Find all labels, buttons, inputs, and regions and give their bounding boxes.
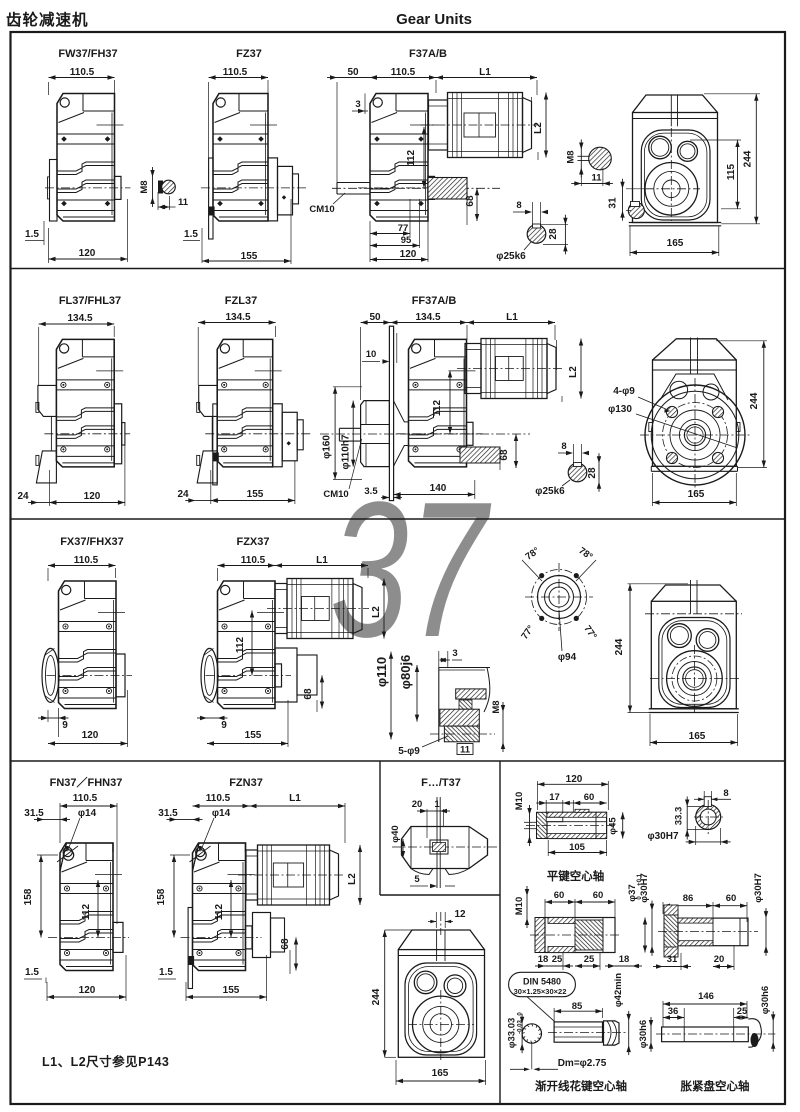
- svg-text:60: 60: [554, 890, 565, 901]
- svg-text:4-φ9: 4-φ9: [613, 386, 635, 397]
- svg-text:L1: L1: [506, 312, 518, 323]
- svg-text:11: 11: [178, 197, 189, 208]
- svg-text:胀紧盘空心轴: 胀紧盘空心轴: [681, 1079, 750, 1093]
- svg-text:L1: L1: [316, 555, 328, 566]
- svg-text:φ80j6: φ80j6: [398, 655, 413, 690]
- svg-text:φ25k6: φ25k6: [535, 486, 565, 497]
- svg-text:20: 20: [412, 799, 423, 810]
- svg-text:M8: M8: [139, 180, 150, 193]
- svg-text:11: 11: [460, 745, 471, 756]
- svg-text:110.5: 110.5: [223, 67, 248, 78]
- svg-text:φ42min: φ42min: [613, 973, 624, 1007]
- svg-text:60: 60: [584, 792, 595, 803]
- svg-text:25: 25: [737, 1006, 748, 1017]
- svg-text:12: 12: [454, 909, 466, 920]
- svg-text:120: 120: [79, 985, 96, 996]
- svg-text:110.5: 110.5: [70, 67, 95, 78]
- svg-text:CM10: CM10: [323, 489, 348, 500]
- svg-text:φ130: φ130: [608, 404, 632, 415]
- svg-text:165: 165: [688, 489, 705, 500]
- svg-text:36: 36: [668, 1006, 679, 1017]
- svg-text:φ30H7: φ30H7: [639, 873, 650, 903]
- svg-text:Gear Units: Gear Units: [396, 11, 472, 28]
- svg-text:158: 158: [23, 888, 34, 905]
- svg-text:φ40: φ40: [390, 825, 401, 842]
- svg-text:165: 165: [432, 1068, 449, 1079]
- svg-text:120: 120: [84, 491, 101, 502]
- svg-text:244: 244: [749, 392, 760, 409]
- svg-text:110.5: 110.5: [241, 555, 266, 566]
- svg-text:155: 155: [223, 985, 240, 996]
- svg-text:60: 60: [593, 890, 604, 901]
- svg-text:φ30H7: φ30H7: [647, 831, 678, 842]
- svg-text:FX37/FHX37: FX37/FHX37: [60, 536, 124, 548]
- svg-text:112: 112: [235, 636, 246, 653]
- svg-text:24: 24: [17, 491, 29, 502]
- svg-text:115: 115: [726, 163, 737, 180]
- svg-text:φ14: φ14: [212, 808, 231, 819]
- svg-text:L1: L1: [479, 67, 491, 78]
- svg-text:1.5: 1.5: [184, 229, 198, 240]
- svg-text:CM10: CM10: [309, 204, 334, 215]
- svg-text:3.5: 3.5: [364, 486, 378, 497]
- svg-text:L2: L2: [347, 873, 358, 885]
- svg-text:φ94: φ94: [558, 652, 577, 663]
- svg-text:18: 18: [538, 954, 549, 965]
- svg-text:1.5: 1.5: [25, 967, 39, 978]
- svg-text:140: 140: [430, 483, 447, 494]
- svg-text:244: 244: [743, 150, 754, 167]
- svg-text:85: 85: [572, 1001, 583, 1012]
- svg-text:110.5: 110.5: [74, 555, 99, 566]
- svg-text:165: 165: [689, 731, 706, 742]
- svg-text:φ30h6: φ30h6: [760, 986, 771, 1014]
- svg-text:FZX37: FZX37: [236, 536, 269, 548]
- svg-text:120: 120: [82, 730, 99, 741]
- svg-text:5: 5: [414, 874, 420, 885]
- svg-text:φ33.03: φ33.03: [507, 1018, 518, 1049]
- svg-text:146: 146: [698, 991, 714, 1002]
- svg-text:134.5: 134.5: [415, 312, 440, 323]
- svg-text:FZ37: FZ37: [236, 48, 262, 60]
- svg-text:Dm=φ2.75: Dm=φ2.75: [558, 1058, 607, 1069]
- svg-text:DIN 5480: DIN 5480: [523, 977, 561, 987]
- svg-text:134.5: 134.5: [67, 313, 92, 324]
- svg-text:68: 68: [499, 449, 510, 461]
- svg-text:18: 18: [619, 954, 630, 965]
- svg-text:50: 50: [369, 312, 381, 323]
- svg-text:17: 17: [549, 792, 560, 803]
- svg-text:110.5: 110.5: [391, 67, 416, 78]
- svg-text:20: 20: [714, 954, 725, 965]
- svg-text:L1: L1: [289, 793, 301, 804]
- svg-text:120: 120: [79, 248, 96, 259]
- svg-text:8: 8: [516, 200, 521, 211]
- svg-text:68: 68: [280, 938, 291, 950]
- svg-text:9: 9: [221, 720, 227, 731]
- svg-text:1.5: 1.5: [25, 229, 39, 240]
- svg-text:112: 112: [81, 903, 92, 920]
- svg-text:φ110h7: φ110h7: [341, 434, 352, 469]
- svg-text:31: 31: [608, 197, 619, 209]
- svg-text:M10: M10: [514, 792, 525, 810]
- svg-text:L2: L2: [568, 366, 579, 378]
- svg-text:平键空心轴: 平键空心轴: [547, 869, 605, 883]
- svg-text:112: 112: [406, 149, 417, 166]
- svg-text:F37A/B: F37A/B: [409, 48, 447, 60]
- svg-text:155: 155: [247, 489, 264, 500]
- svg-text:L2: L2: [533, 122, 544, 134]
- svg-text:L2: L2: [371, 606, 382, 618]
- svg-text:5-φ9: 5-φ9: [398, 746, 420, 757]
- svg-text:68: 68: [303, 688, 314, 700]
- svg-text:110.5: 110.5: [73, 793, 98, 804]
- svg-text:30×1.25×30×22: 30×1.25×30×22: [514, 987, 567, 996]
- svg-text:112: 112: [214, 903, 225, 920]
- svg-text:φ110: φ110: [374, 657, 389, 687]
- svg-text:φ30h6: φ30h6: [638, 1020, 649, 1048]
- svg-text:155: 155: [245, 730, 262, 741]
- svg-text:φ45: φ45: [608, 817, 619, 835]
- svg-text:FL37/FHL37: FL37/FHL37: [59, 295, 121, 307]
- svg-text:31.5: 31.5: [158, 808, 178, 819]
- svg-text:11: 11: [591, 173, 602, 184]
- svg-text:37: 37: [330, 461, 492, 677]
- svg-text:244: 244: [614, 638, 625, 655]
- svg-text:3: 3: [355, 99, 360, 110]
- svg-text:50: 50: [347, 67, 359, 78]
- svg-text:112: 112: [432, 399, 443, 416]
- svg-text:31: 31: [667, 954, 678, 965]
- svg-text:FZL37: FZL37: [225, 295, 257, 307]
- svg-text:155: 155: [241, 251, 258, 262]
- svg-text:9: 9: [62, 720, 68, 731]
- svg-text:158: 158: [156, 888, 167, 905]
- svg-text:10: 10: [366, 349, 377, 360]
- svg-text:FN37／FHN37: FN37／FHN37: [50, 776, 123, 789]
- svg-text:FF37A/B: FF37A/B: [412, 295, 457, 307]
- svg-text:120: 120: [566, 774, 583, 785]
- svg-text:25: 25: [552, 954, 563, 965]
- svg-text:L1、L2尺寸参见P143: L1、L2尺寸参见P143: [42, 1054, 169, 1069]
- svg-text:33.3: 33.3: [674, 807, 685, 826]
- svg-text:105: 105: [569, 842, 586, 853]
- svg-text:3: 3: [452, 648, 457, 659]
- svg-text:25: 25: [584, 954, 595, 965]
- svg-text:110.5: 110.5: [206, 793, 231, 804]
- svg-text:φ25k6: φ25k6: [496, 251, 526, 262]
- svg-text:244: 244: [371, 988, 382, 1005]
- svg-text:8: 8: [723, 788, 728, 799]
- svg-text:28: 28: [587, 467, 598, 479]
- svg-text:FZN37: FZN37: [229, 777, 263, 789]
- svg-text:60: 60: [726, 893, 737, 904]
- svg-text:8: 8: [561, 441, 566, 452]
- svg-text:φ160: φ160: [322, 435, 333, 459]
- svg-text:渐开线花键空心轴: 渐开线花键空心轴: [535, 1079, 627, 1093]
- svg-text:齿轮减速机: 齿轮减速机: [6, 10, 89, 29]
- svg-text:M8: M8: [566, 150, 577, 163]
- svg-text:120: 120: [400, 249, 417, 260]
- svg-text:31.5: 31.5: [24, 808, 44, 819]
- svg-text:F…/T37: F…/T37: [421, 777, 461, 789]
- svg-text:86: 86: [683, 893, 694, 904]
- svg-text:134.5: 134.5: [225, 312, 250, 323]
- svg-text:M10: M10: [514, 897, 525, 915]
- svg-text:24: 24: [177, 489, 189, 500]
- svg-text:φ14: φ14: [78, 808, 97, 819]
- svg-text:165: 165: [667, 238, 684, 249]
- svg-text:φ30H7: φ30H7: [753, 873, 764, 903]
- svg-text:FW37/FH37: FW37/FH37: [58, 48, 117, 60]
- svg-text:1.5: 1.5: [159, 967, 173, 978]
- svg-text:95: 95: [401, 235, 412, 246]
- svg-text:28: 28: [548, 228, 559, 240]
- svg-text:M8: M8: [491, 700, 502, 713]
